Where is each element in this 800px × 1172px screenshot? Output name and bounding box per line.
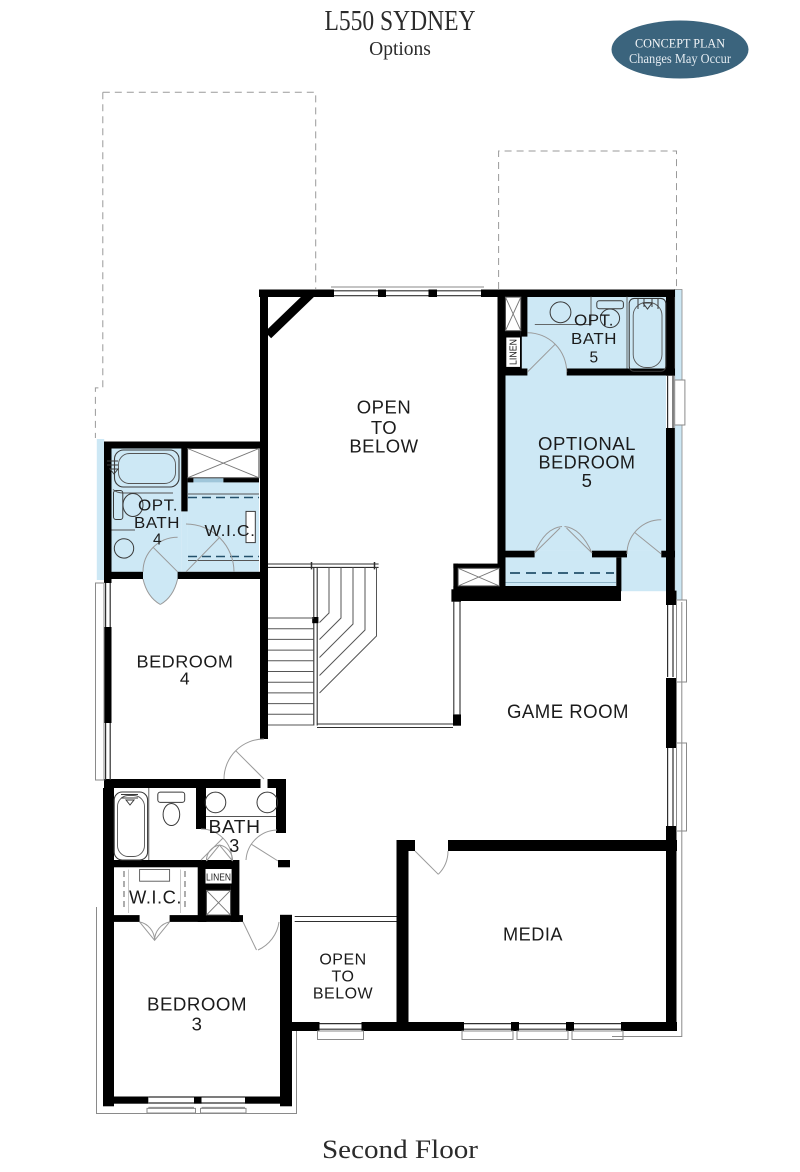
svg-text:GAME ROOM: GAME ROOM <box>507 701 629 723</box>
svg-text:LINEN: LINEN <box>508 339 520 365</box>
svg-text:4: 4 <box>153 532 162 549</box>
svg-text:4: 4 <box>180 669 190 689</box>
svg-text:OPT.: OPT. <box>138 498 178 515</box>
svg-text:5: 5 <box>589 350 598 367</box>
svg-text:BELOW: BELOW <box>313 986 374 1003</box>
svg-text:BELOW: BELOW <box>349 436 418 457</box>
svg-text:Options: Options <box>369 39 431 60</box>
svg-text:3: 3 <box>229 836 240 856</box>
svg-text:5: 5 <box>582 470 593 491</box>
svg-text:MEDIA: MEDIA <box>503 924 563 945</box>
svg-text:BATH: BATH <box>571 331 617 348</box>
svg-text:BATH: BATH <box>209 817 261 837</box>
svg-text:LINEN: LINEN <box>206 872 231 884</box>
svg-text:OPEN: OPEN <box>319 952 366 969</box>
svg-text:Changes May Occur: Changes May Occur <box>629 52 731 67</box>
svg-text:W.I.C.: W.I.C. <box>129 887 182 908</box>
svg-text:OPEN: OPEN <box>357 397 411 418</box>
svg-text:W.I.C.: W.I.C. <box>205 523 256 540</box>
svg-text:Second Floor: Second Floor <box>322 1135 478 1164</box>
svg-text:BEDROOM: BEDROOM <box>147 994 247 1015</box>
svg-text:L550 SYDNEY: L550 SYDNEY <box>325 5 476 37</box>
svg-text:OPT.: OPT. <box>574 313 614 330</box>
svg-text:BATH: BATH <box>134 515 180 532</box>
svg-text:3: 3 <box>192 1014 203 1035</box>
svg-text:CONCEPT PLAN: CONCEPT PLAN <box>635 37 725 51</box>
svg-text:TO: TO <box>332 969 355 986</box>
